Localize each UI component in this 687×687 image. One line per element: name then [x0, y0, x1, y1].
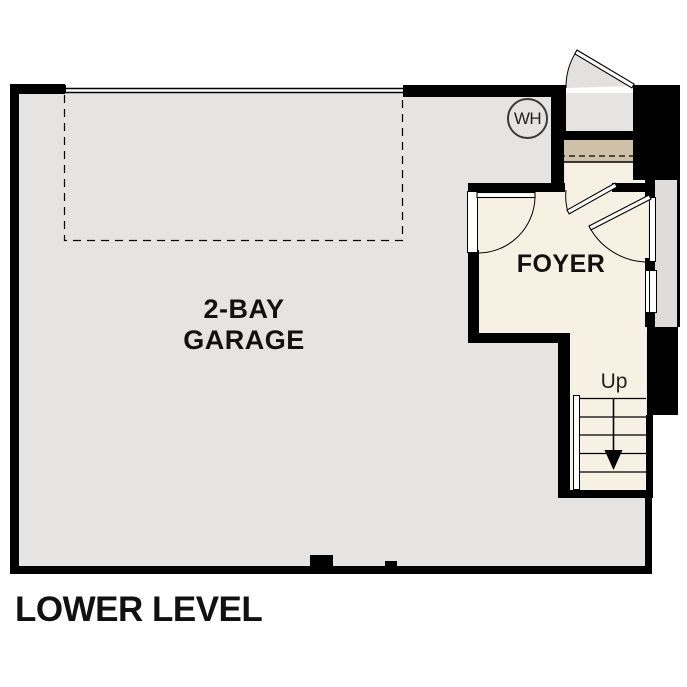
water-heater-label: WH [514, 109, 541, 129]
stair-right-wall [646, 415, 653, 498]
stoop-doorframe [649, 197, 656, 262]
garage-right-wall [645, 498, 652, 572]
water-heater-symbol: WH [507, 98, 548, 139]
garage-room-label: 2-BAY GARAGE [130, 294, 358, 356]
garage-door-jamb [61, 85, 66, 93]
plan-title: LOWER LEVEL [15, 590, 415, 630]
foyer-top-wall-left [468, 183, 565, 192]
entry-step-landing [558, 140, 645, 162]
bottom-exterior-wall [10, 566, 652, 574]
stairs-up-label: Up [596, 370, 632, 394]
floor-plan: WH 2-BAY GARAGE FOYER Up LOWER LEVEL [0, 0, 687, 687]
foyer-left-wall [468, 250, 479, 335]
bottom-wall-pilaster-large [310, 555, 333, 566]
stair-left-wall [558, 341, 570, 498]
foyer-top-wall-right [612, 183, 647, 192]
right-wall-thick-block [647, 327, 678, 415]
entry-door-arc [566, 52, 576, 88]
stair-handrail [573, 395, 580, 490]
foyer-room-label: FOYER [500, 250, 622, 279]
right-wall-below-window [645, 311, 655, 327]
window [645, 270, 657, 313]
garage-foyer-doorframe [467, 191, 478, 253]
stair-bottom-wall [558, 490, 652, 498]
right-exterior-line [677, 85, 680, 327]
entry-door-leaf [575, 50, 634, 88]
right-wall-upper [645, 180, 655, 198]
bottom-wall-pilaster-small [385, 561, 397, 567]
entry-door-swing-area [566, 52, 633, 88]
top-wall [403, 85, 566, 97]
foyer-bottom-wall [468, 333, 570, 343]
top-right-wall-block [633, 85, 677, 180]
top-left-wall-stub [10, 84, 65, 94]
vestibule-lower-wall [551, 131, 645, 140]
left-exterior-wall [10, 84, 19, 574]
